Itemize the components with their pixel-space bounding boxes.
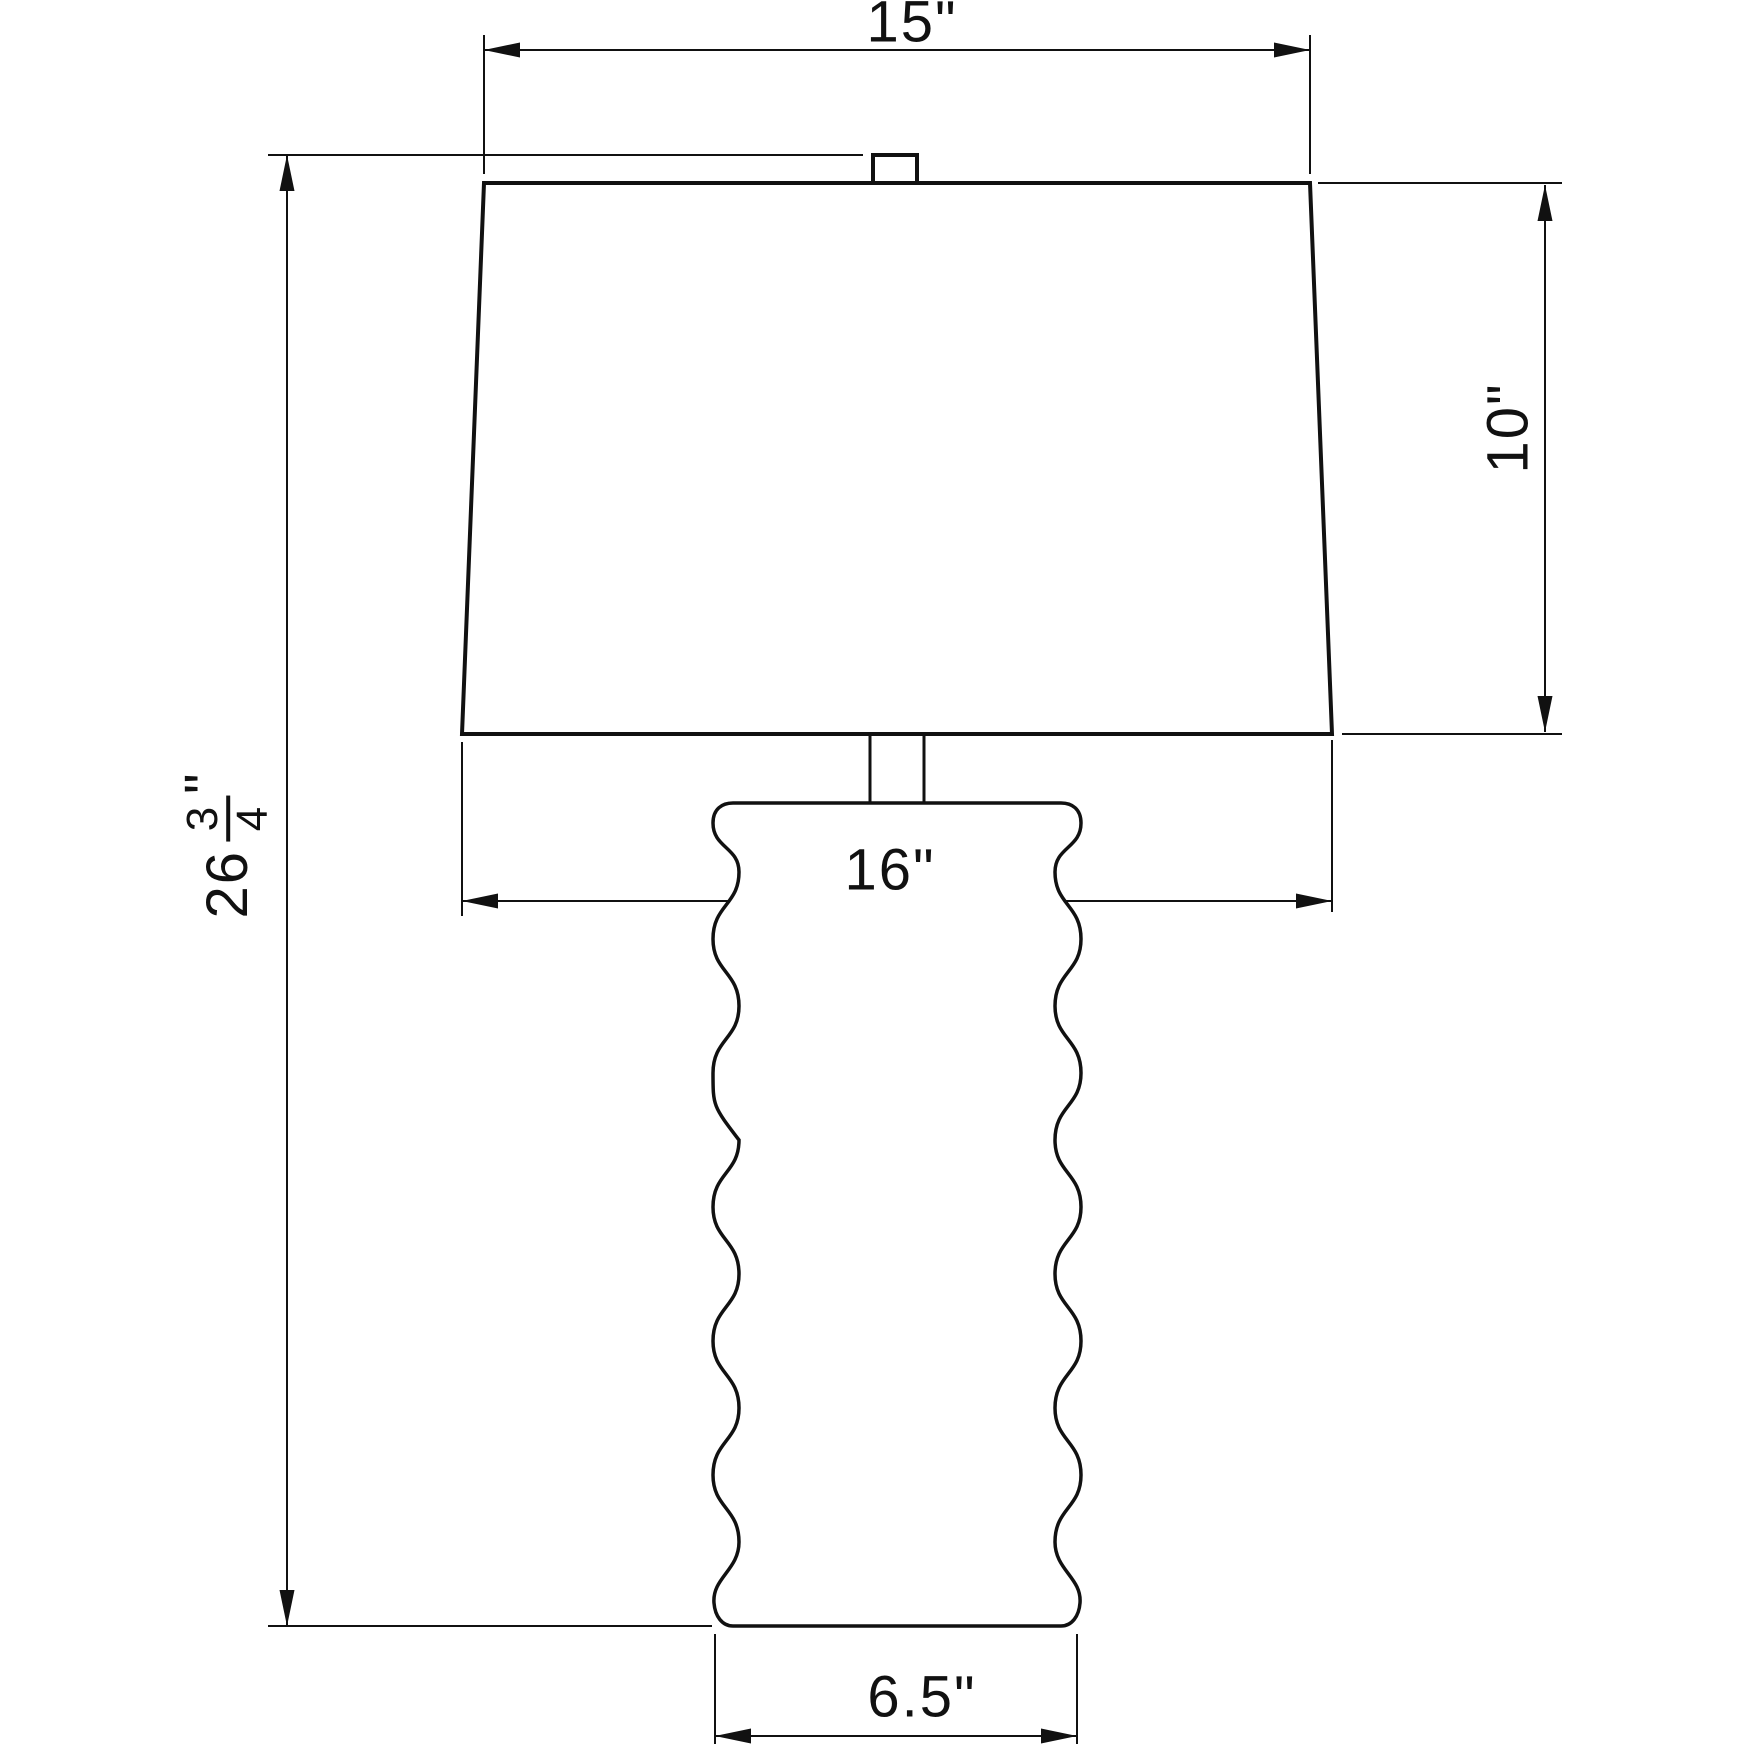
dimension-fraction: 34 xyxy=(182,796,274,842)
dimension-value: 16 xyxy=(844,837,913,904)
shade-height-label: 10" xyxy=(1475,382,1542,473)
arrowhead-right xyxy=(1274,43,1310,58)
arrowhead-left xyxy=(715,1729,751,1744)
arrowhead-up xyxy=(1538,185,1553,221)
finial xyxy=(873,155,917,183)
arrowhead-down xyxy=(1538,696,1553,732)
unit-mark: " xyxy=(172,771,239,794)
unit-mark: " xyxy=(913,837,936,904)
unit-mark: " xyxy=(1475,382,1542,405)
total-height-label: 2634" xyxy=(182,771,274,918)
shade-bottom-width-label: 16" xyxy=(844,837,935,904)
lamp-dimension-drawing: 15" 10" 2634" 16" 6.5" xyxy=(0,0,1744,1744)
arrowhead-left xyxy=(462,894,498,909)
arrowhead-right xyxy=(1296,894,1332,909)
dimension-whole: 26 xyxy=(195,850,262,919)
arrowhead-up xyxy=(280,155,295,191)
shade-top-width-label: 15" xyxy=(866,0,957,56)
dimension-value: 15 xyxy=(866,0,935,56)
arrowhead-down xyxy=(280,1590,295,1626)
arrowhead-right xyxy=(1041,1729,1077,1744)
unit-mark: " xyxy=(935,0,958,56)
arrowhead-left xyxy=(484,43,520,58)
dimension-value: 6.5 xyxy=(867,1664,954,1731)
fraction-denominator: 4 xyxy=(232,807,274,831)
base-width-label: 6.5" xyxy=(867,1664,976,1731)
lamp-shade xyxy=(462,183,1332,734)
fraction-numerator: 3 xyxy=(182,807,224,831)
lamp-body xyxy=(713,803,1081,1626)
dimension-value: 10 xyxy=(1475,405,1542,474)
unit-mark: " xyxy=(954,1664,977,1731)
